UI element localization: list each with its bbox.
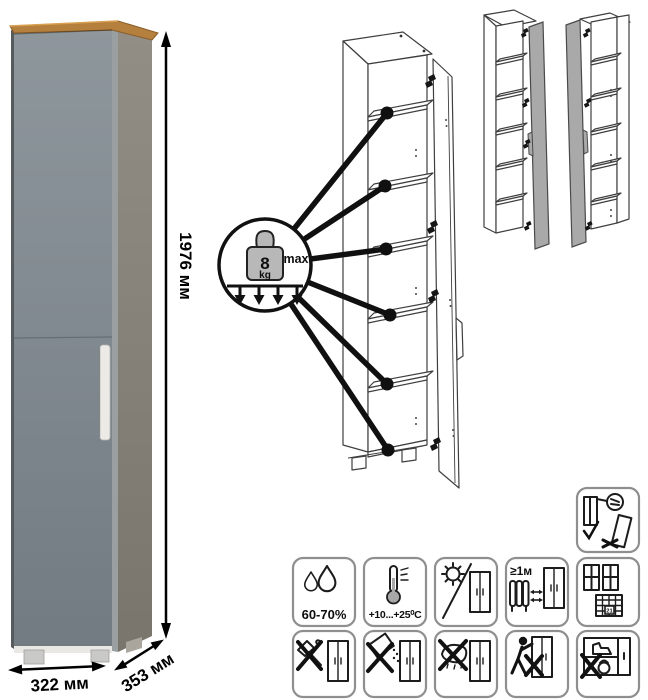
schematic-foot-left bbox=[352, 456, 366, 470]
no-drag-icon bbox=[506, 631, 568, 697]
variant-door-right bbox=[484, 10, 549, 249]
arrowhead-depth-far bbox=[151, 640, 164, 651]
hinge-icon bbox=[583, 28, 591, 38]
depth-dimension-label: 353 мм bbox=[118, 649, 177, 696]
no-wet-cleaning-icon bbox=[435, 631, 497, 697]
temperature-label: +10...+25⁰C bbox=[369, 609, 423, 621]
height-dimension: 1976 мм bbox=[161, 31, 195, 639]
cabinet-front-door bbox=[14, 29, 112, 651]
arrowhead-down bbox=[161, 623, 171, 639]
product-photo bbox=[10, 21, 158, 664]
variant-door-handle bbox=[528, 132, 533, 156]
width-dimension bbox=[8, 661, 106, 675]
door-handle bbox=[100, 345, 110, 440]
variant-door-handle bbox=[583, 130, 588, 154]
no-overload-icon bbox=[577, 631, 639, 697]
cabinet-carcass-edge bbox=[112, 29, 118, 652]
foot-right bbox=[91, 650, 109, 662]
heater-distance-label: ≥1м bbox=[510, 564, 532, 578]
no-spill-icon bbox=[364, 631, 426, 697]
schematic-door-handle bbox=[456, 318, 463, 360]
sheet-canvas: 1976 мм 322 мм 353 мм bbox=[0, 0, 648, 700]
arrowhead-depth-near bbox=[114, 660, 127, 671]
load-max-label: max bbox=[283, 252, 308, 266]
calendar-day-label: 21 bbox=[606, 609, 613, 615]
cabinet-left-edge bbox=[11, 30, 14, 649]
hinge-icon bbox=[524, 221, 532, 231]
width-dimension-label: 322 мм bbox=[30, 673, 89, 695]
arrowhead-up bbox=[161, 31, 171, 47]
person-head bbox=[519, 637, 527, 645]
humidity-label: 60-70% bbox=[302, 607, 347, 622]
secure-to-wall-icon bbox=[577, 488, 639, 552]
humidity-icon: 60-70% bbox=[293, 558, 355, 626]
height-dimension-label: 1976 мм bbox=[176, 232, 195, 300]
cabinet-side-panel bbox=[118, 30, 152, 652]
variant-door-left bbox=[566, 13, 630, 247]
ventilation-calendar-icon: 21 bbox=[577, 558, 639, 626]
schematic-open-door bbox=[425, 59, 463, 488]
load-unit: kg bbox=[259, 270, 271, 281]
product-sheet: 1976 мм 322 мм 353 мм bbox=[0, 0, 648, 700]
load-limit-badge: 8 kg max bbox=[219, 219, 311, 311]
no-impact-icon bbox=[293, 631, 355, 697]
shelf-load-diagram: 8 kg max bbox=[219, 32, 463, 488]
arrowhead-right bbox=[92, 661, 106, 672]
heater-distance-icon: ≥1м bbox=[506, 558, 568, 626]
no-direct-sunlight-icon bbox=[435, 558, 497, 626]
arrowhead-left bbox=[8, 665, 22, 676]
schematic-foot-right bbox=[402, 448, 416, 462]
foot-left bbox=[24, 650, 44, 664]
weight-icon bbox=[256, 231, 273, 248]
temperature-icon: +10...+25⁰C bbox=[364, 558, 426, 626]
